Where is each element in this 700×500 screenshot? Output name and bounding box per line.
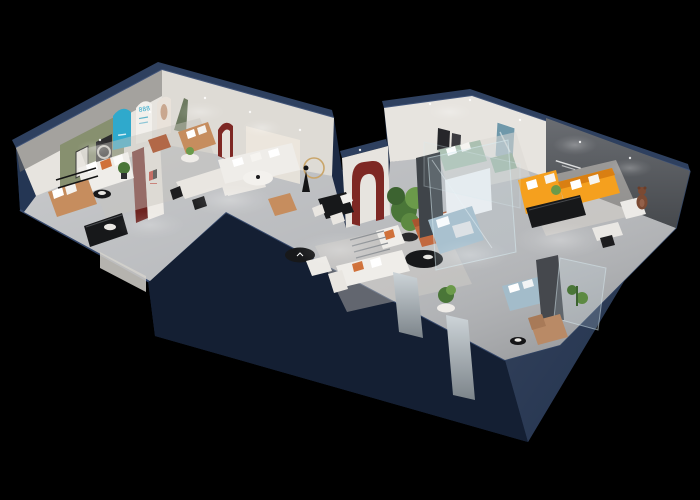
- floor-light-pool-4: [515, 222, 605, 258]
- floor-light-pool-5: [115, 211, 185, 239]
- plant-left: [118, 162, 130, 174]
- plant-left-pot: [121, 173, 127, 179]
- wall-wash-3: [428, 103, 472, 121]
- sectional-table-vase: [256, 175, 260, 179]
- sofa-plant: [551, 185, 561, 195]
- white-stool: [104, 224, 116, 230]
- wall-wash-4: [553, 135, 597, 155]
- red-arch-niche-inner: [222, 130, 230, 160]
- side-table-plant: [186, 147, 194, 155]
- poster-model-figure: [161, 104, 168, 120]
- teddy-bear-ear-2: [644, 187, 647, 190]
- wall-wash-5: [608, 159, 652, 177]
- front-plant-table: [437, 304, 455, 313]
- cactus-plant-1: [567, 285, 577, 295]
- wall-wash-6: [77, 140, 113, 156]
- floor-light-pool-2: [295, 232, 385, 268]
- floorplan-svg: 888: [0, 0, 700, 500]
- coffee-table-tray: [98, 191, 106, 195]
- side-table-tray-low: [515, 338, 522, 342]
- wall-wash-1: [175, 102, 225, 122]
- wall-wash-2: [242, 119, 282, 137]
- teddy-bear-ear-1: [638, 187, 641, 190]
- teddy-bear-belly: [640, 199, 645, 207]
- showroom-render: 888: [0, 0, 700, 500]
- floor-light-pool-1: [188, 184, 272, 216]
- floor-light-pool-3: [430, 239, 510, 271]
- tree-canopy-3: [387, 187, 405, 205]
- mannequin-head: [304, 166, 309, 171]
- front-plant-2: [446, 285, 456, 295]
